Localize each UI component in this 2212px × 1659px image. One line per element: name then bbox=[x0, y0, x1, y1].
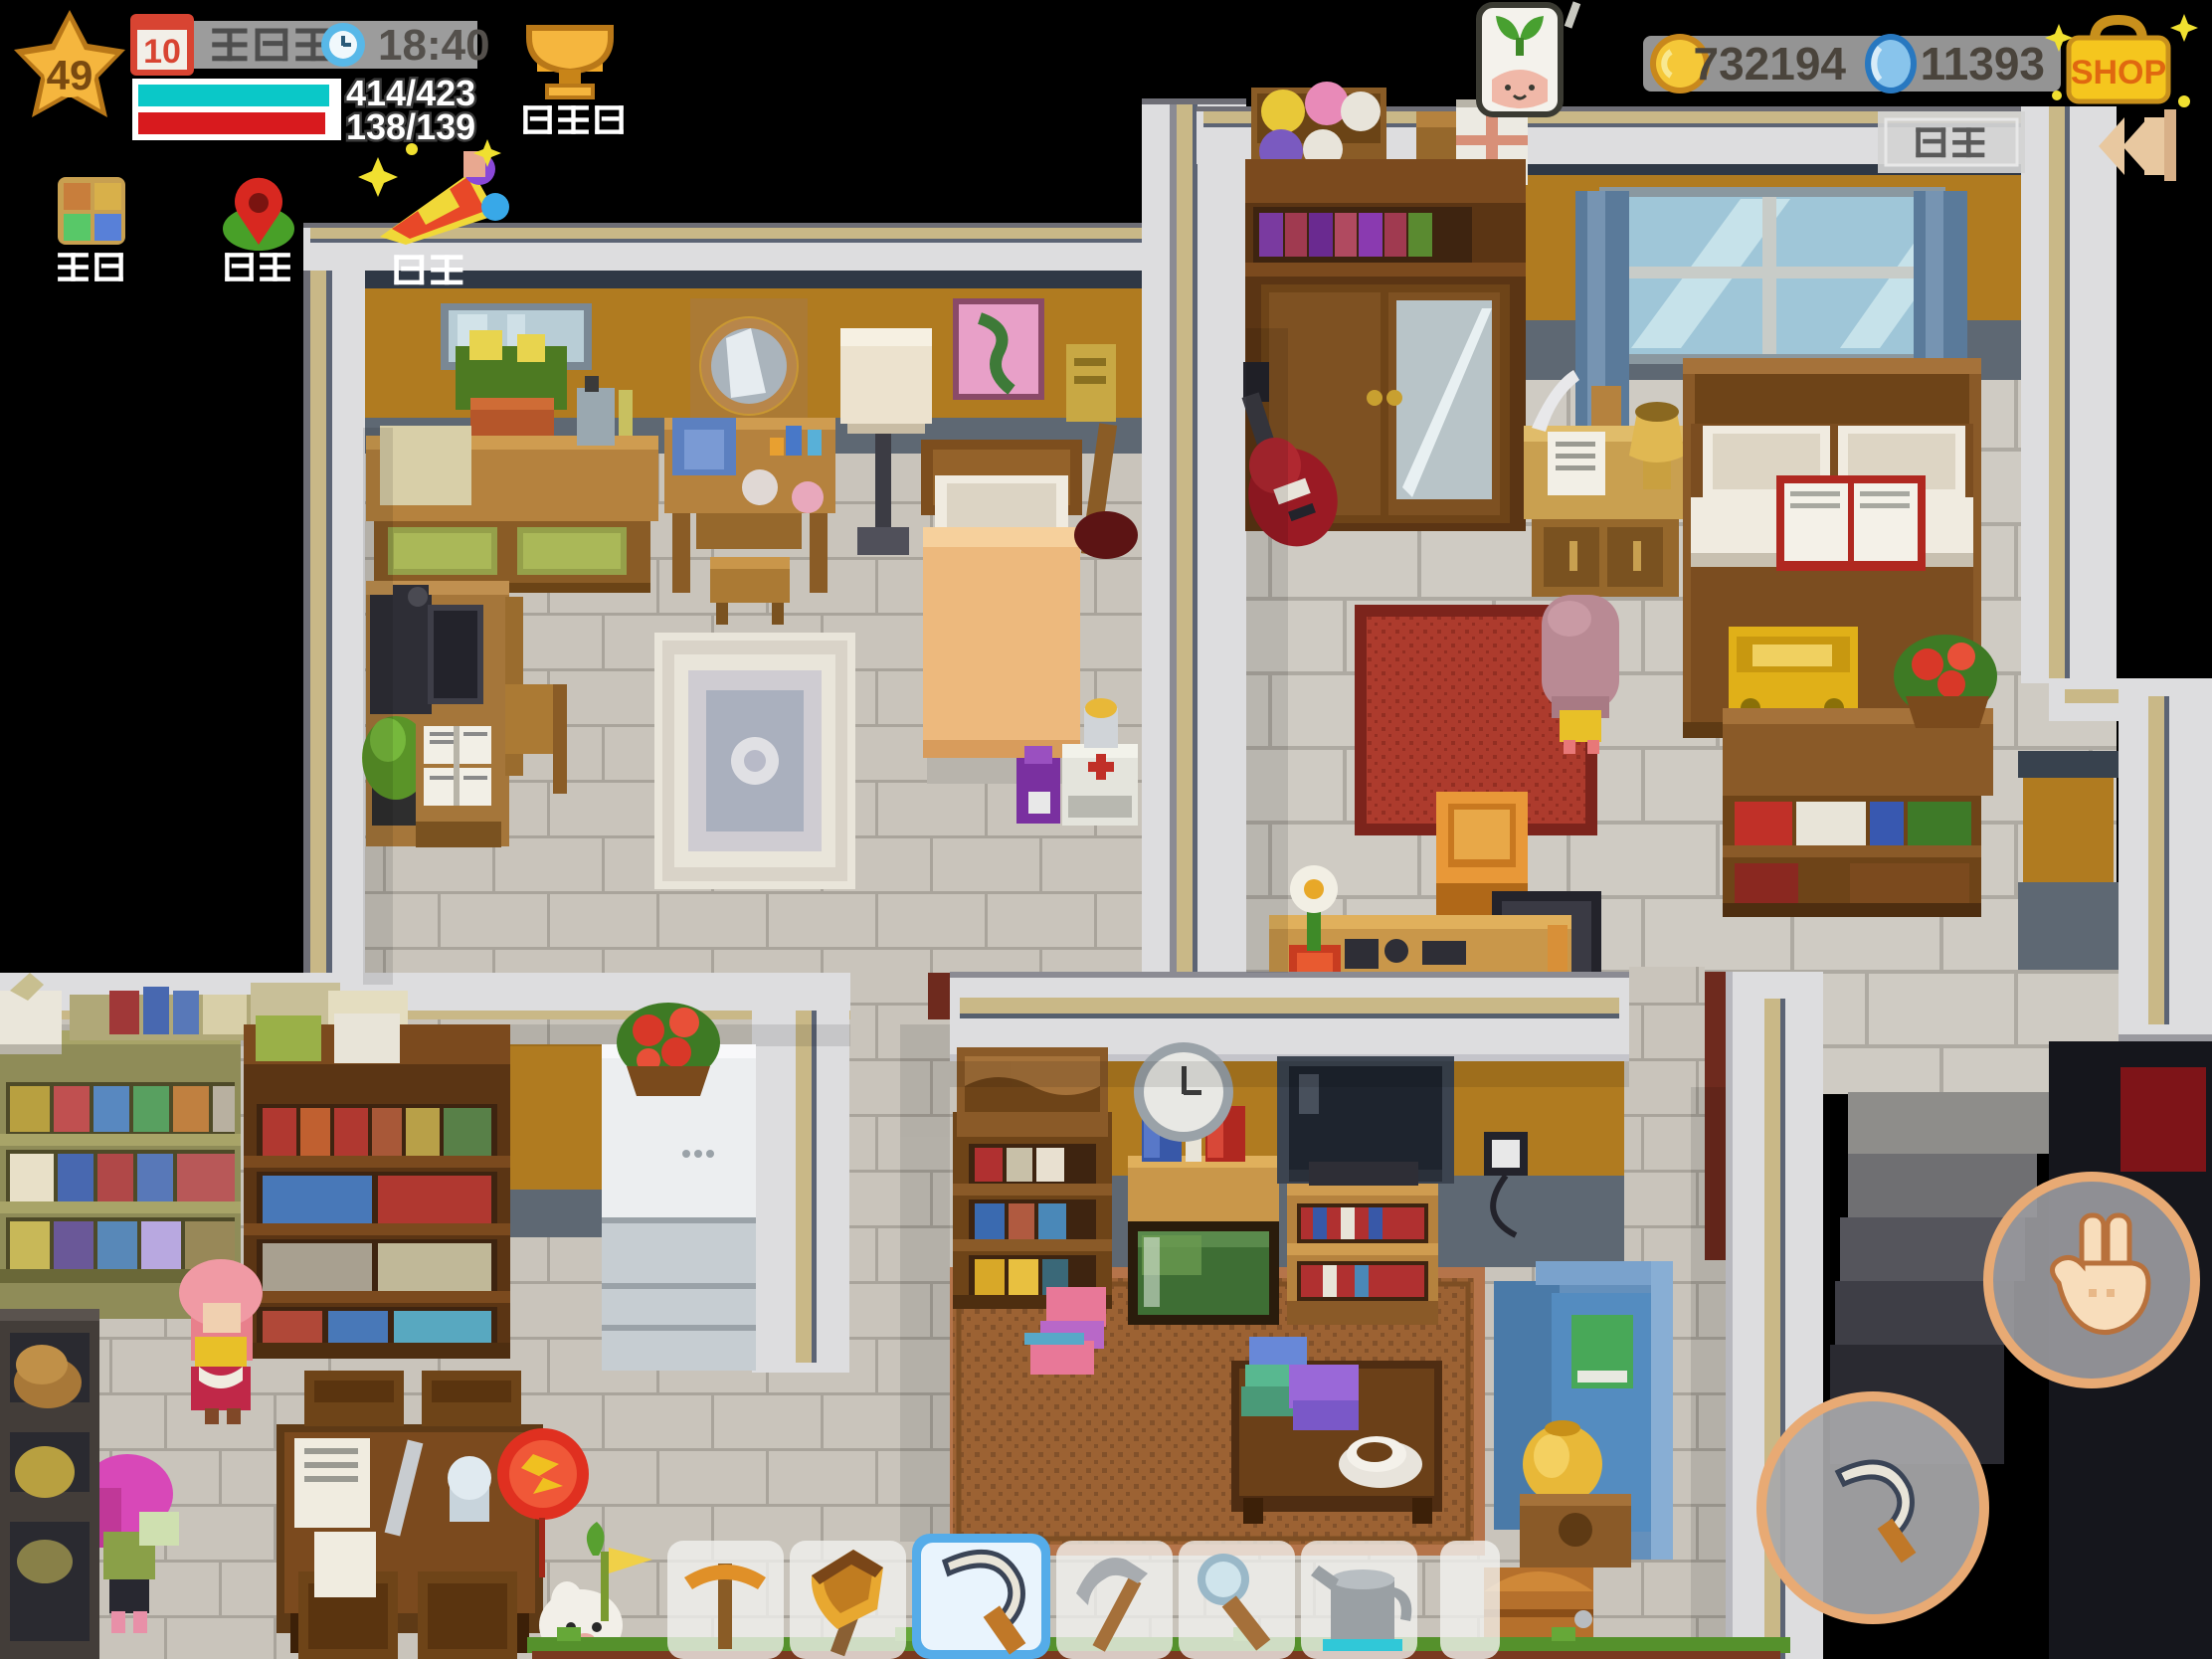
svg-text:10: 10 bbox=[143, 33, 181, 71]
svg-text:138/139: 138/139 bbox=[346, 106, 475, 147]
svg-text:SHOP: SHOP bbox=[2071, 54, 2166, 92]
svg-text:49: 49 bbox=[47, 52, 93, 98]
svg-text:18:40: 18:40 bbox=[378, 21, 490, 70]
svg-text:11393: 11393 bbox=[1921, 38, 2045, 90]
svg-text:732194: 732194 bbox=[1694, 38, 1847, 90]
